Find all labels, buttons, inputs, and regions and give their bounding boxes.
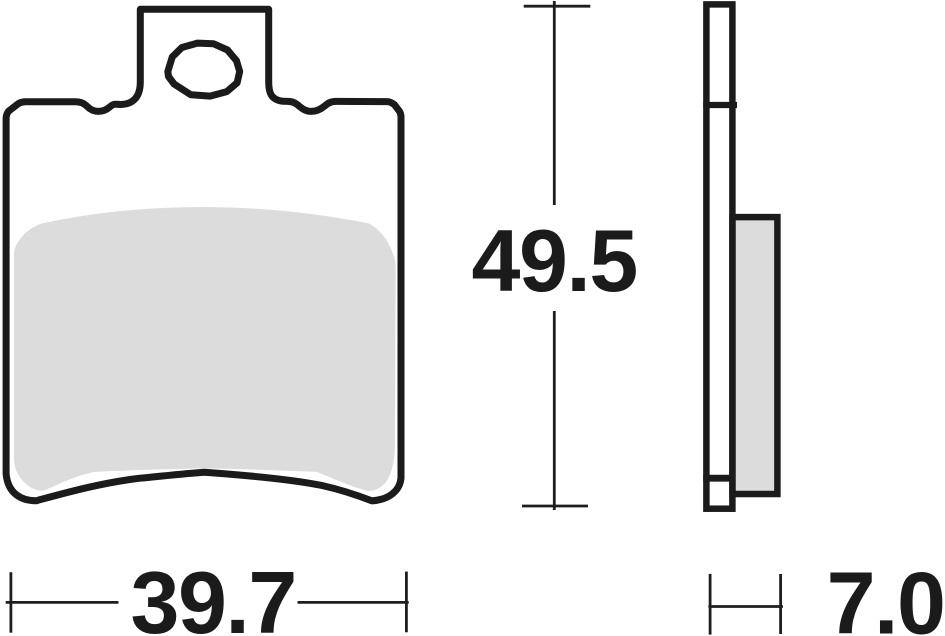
svg-text:7.0: 7.0: [827, 553, 945, 636]
svg-text:39.7: 39.7: [131, 553, 296, 636]
svg-text:49.5: 49.5: [472, 211, 637, 310]
